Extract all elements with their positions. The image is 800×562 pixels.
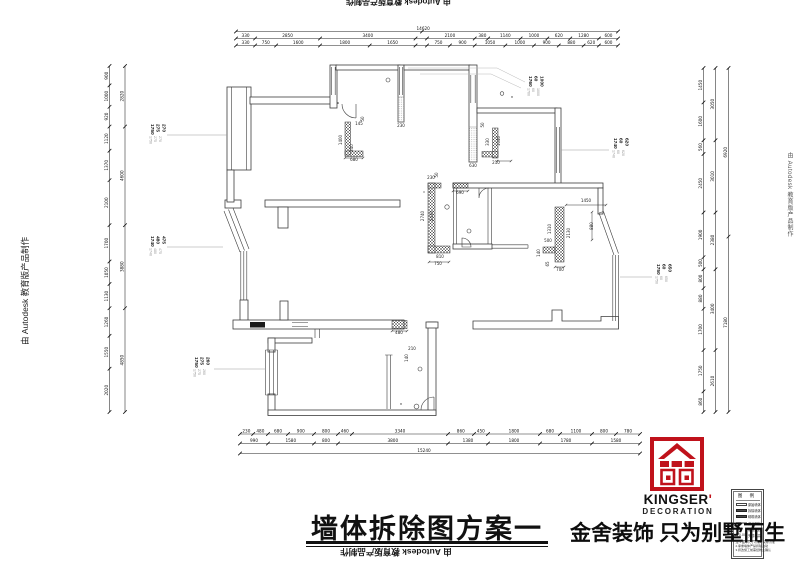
brand-subtitle: DECORATION [640,507,716,516]
svg-text:1130: 1130 [104,290,109,301]
leader-annotation: 17502752601750275260 [192,357,208,377]
svg-text:2100: 2100 [445,33,456,38]
svg-text:1370: 1370 [104,160,109,171]
svg-text:700: 700 [556,267,564,272]
svg-text:480: 480 [395,330,403,335]
svg-text:65: 65 [545,261,550,267]
svg-text:1600: 1600 [293,40,304,45]
svg-text:1450: 1450 [581,198,592,203]
svg-text:330: 330 [485,138,490,146]
svg-text:1050: 1050 [104,267,109,278]
svg-text:900: 900 [543,40,551,45]
svg-text:4600: 4600 [120,170,125,181]
demolition-hatch [345,122,564,329]
svg-text:620: 620 [587,40,595,45]
svg-text:2450: 2450 [698,178,703,189]
svg-text:1550: 1550 [104,346,109,357]
leader-elbows [408,68,525,88]
drawing-title-block: 墙体拆除图方案一 [302,507,552,546]
svg-text:50: 50 [360,116,365,122]
svg-text:2850: 2850 [282,33,293,38]
svg-text:1800: 1800 [509,429,520,434]
svg-text:500: 500 [544,238,552,243]
svg-text:1600: 1600 [698,116,703,127]
svg-text:1380: 1380 [463,438,474,443]
svg-text:880: 880 [589,222,594,230]
svg-text:750: 750 [262,40,270,45]
svg-text:1040: 1040 [496,135,501,146]
svg-text:750: 750 [434,40,442,45]
svg-text:340: 340 [349,144,354,152]
svg-text:690: 690 [456,190,464,195]
svg-text:990: 990 [250,438,258,443]
svg-text:3400: 3400 [710,303,715,314]
kingser-logo-icon [650,437,704,491]
svg-text:450: 450 [477,429,485,434]
svg-text:900: 900 [459,40,467,45]
watermark-right: 由 Autodesk 教育版产品制作 [785,152,794,337]
svg-text:500: 500 [698,259,703,267]
svg-text:3050: 3050 [710,98,715,109]
svg-text:1000: 1000 [104,90,109,101]
leader-annotation: 17606010001760601000 [526,76,542,96]
svg-text:1700: 1700 [698,324,703,335]
svg-text:2740: 2740 [420,210,425,221]
svg-text:800: 800 [322,438,330,443]
leader-annotation: 17404804751740480475 [148,236,164,256]
svg-text:1280: 1280 [578,33,589,38]
svg-text:860: 860 [457,429,465,434]
leader-annotation: 174060620174060620 [611,138,627,158]
svg-text:140: 140 [404,354,409,362]
svg-text:1780: 1780 [561,438,572,443]
svg-text:1100: 1100 [571,429,582,434]
leader-annotation: 175060650175060650 [654,264,670,284]
svg-text:460: 460 [341,429,349,434]
svg-text:680: 680 [350,157,358,162]
svg-text:1000: 1000 [529,33,540,38]
leader-annotation: 17502752701750275270 [148,124,164,144]
svg-text:560: 560 [698,143,703,151]
svg-text:1050: 1050 [485,40,496,45]
svg-text:1800: 1800 [340,40,351,45]
svg-text:1650: 1650 [387,40,398,45]
svg-text:50: 50 [434,172,439,178]
svg-text:140: 140 [536,249,541,257]
svg-text:1260: 1260 [104,316,109,327]
svg-text:900: 900 [104,71,109,79]
svg-text:14620: 14620 [417,26,431,31]
floor-plan-page: 1462033028503400210038011401000620128060… [0,0,800,562]
svg-text:1120: 1120 [104,133,109,144]
svg-text:1580: 1580 [611,438,622,443]
svg-text:3800: 3800 [387,438,398,443]
svg-text:630: 630 [469,163,477,168]
legend-row: 拆除墙体 [736,508,760,513]
svg-text:1700: 1700 [104,237,109,248]
svg-text:1310: 1310 [547,223,552,234]
svg-text:330: 330 [242,33,250,38]
svg-text:880: 880 [567,40,575,45]
svg-text:1900: 1900 [698,229,703,240]
svg-text:900: 900 [297,429,305,434]
svg-text:780: 780 [624,429,632,434]
svg-text:2130: 2130 [566,227,571,238]
stipple-walls [398,97,477,162]
svg-text:2820: 2820 [120,90,125,101]
solid-wall-segment [250,322,265,328]
svg-text:2020: 2020 [104,385,109,396]
svg-text:920: 920 [104,112,109,120]
svg-text:330: 330 [242,40,250,45]
svg-text:800: 800 [600,429,608,434]
svg-text:230: 230 [242,429,250,434]
svg-text:800: 800 [698,274,703,282]
svg-text:3340: 3340 [395,429,406,434]
svg-text:2610: 2610 [710,375,715,386]
svg-text:50: 50 [480,122,485,128]
legend-header: 图 例 [736,493,760,501]
svg-text:4850: 4850 [120,354,125,365]
svg-text:750: 750 [434,261,442,266]
svg-text:210: 210 [408,346,416,351]
svg-text:6920: 6920 [723,147,728,158]
svg-text:600: 600 [604,33,612,38]
drawing-title: 墙体拆除图方案一 [302,507,552,546]
svg-text:380: 380 [478,33,486,38]
svg-text:230: 230 [397,123,405,128]
svg-text:3400: 3400 [362,33,373,38]
svg-text:1450: 1450 [698,80,703,91]
watermark-bottom: 由 Autodesk 教育版产品制作 [326,546,466,558]
svg-text:1750: 1750 [698,365,703,376]
svg-text:620: 620 [555,33,563,38]
svg-text:3880: 3880 [120,261,125,272]
legend-row: 原始墙体 [736,502,760,507]
svg-text:800: 800 [322,429,330,434]
brand-slogan: 金舍装饰 只为别墅而生 [570,517,800,547]
watermark-top: 由 Autodesk 教育版产品制作 [346,0,464,6]
svg-text:860: 860 [698,397,703,405]
svg-text:210: 210 [492,160,500,165]
svg-text:810: 810 [436,254,444,259]
svg-text:480: 480 [256,429,264,434]
watermark-left: 由 Autodesk 教育版产品制作 [19,237,31,345]
svg-text:3010: 3010 [710,171,715,182]
svg-text:880: 880 [698,294,703,302]
svg-text:600: 600 [604,40,612,45]
svg-text:1140: 1140 [500,33,511,38]
svg-text:2100: 2100 [104,197,109,208]
svg-text:15240: 15240 [417,448,431,453]
brand-name: KINGSER' [640,492,716,507]
svg-text:1400: 1400 [338,134,343,145]
svg-text:2380: 2380 [710,234,715,245]
svg-text:680: 680 [274,429,282,434]
title-underline-thin [306,546,548,547]
svg-text:680: 680 [546,429,554,434]
svg-text:1580: 1580 [285,438,296,443]
svg-text:1800: 1800 [509,438,520,443]
svg-text:1000: 1000 [514,40,525,45]
svg-text:2430: 2430 [429,210,434,221]
dimension-chains: 1462033028503400210038011401000620128060… [104,26,730,455]
svg-text:7180: 7180 [723,317,728,328]
